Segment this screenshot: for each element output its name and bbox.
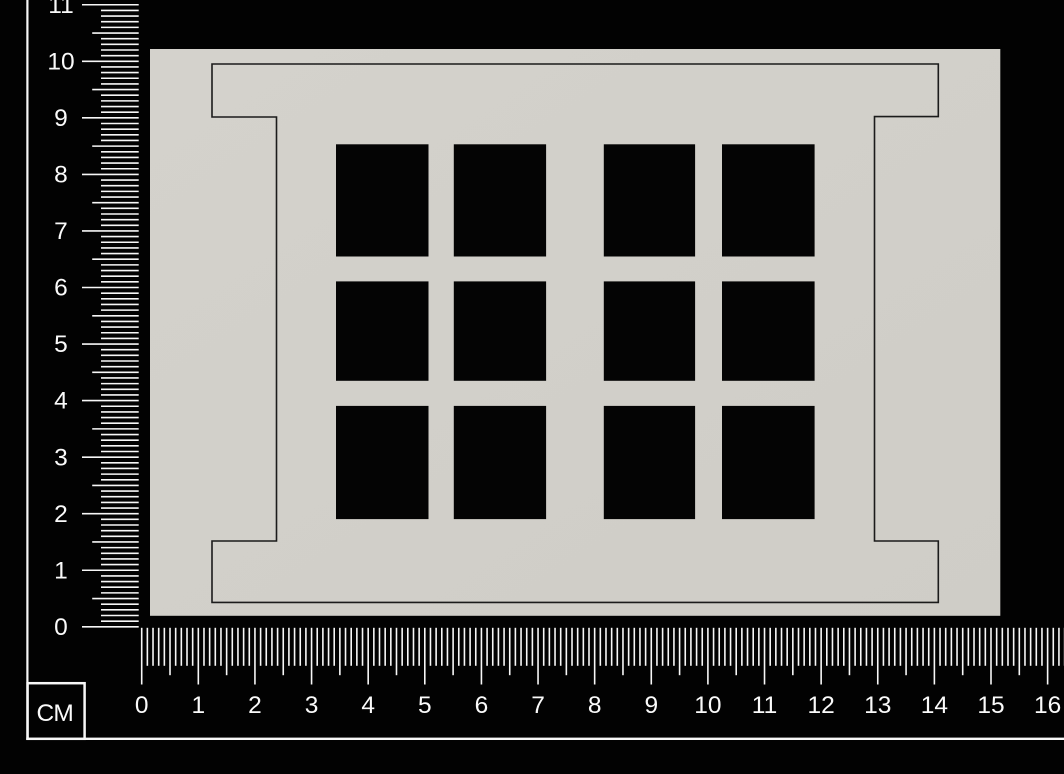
svg-text:2: 2 <box>54 501 68 528</box>
svg-text:5: 5 <box>418 692 432 719</box>
svg-text:14: 14 <box>921 692 948 719</box>
svg-text:5: 5 <box>54 331 68 358</box>
svg-text:0: 0 <box>135 692 149 719</box>
svg-text:13: 13 <box>864 692 891 719</box>
svg-text:4: 4 <box>54 388 68 415</box>
svg-text:6: 6 <box>475 692 489 719</box>
svg-text:12: 12 <box>808 692 835 719</box>
svg-text:7: 7 <box>54 218 68 245</box>
svg-text:15: 15 <box>977 692 1004 719</box>
svg-text:9: 9 <box>644 692 658 719</box>
svg-text:8: 8 <box>54 162 68 189</box>
svg-text:3: 3 <box>54 444 68 471</box>
svg-text:16: 16 <box>1034 692 1061 719</box>
svg-text:8: 8 <box>588 692 602 719</box>
svg-text:11: 11 <box>752 692 777 719</box>
svg-text:0: 0 <box>54 614 68 641</box>
svg-text:11: 11 <box>48 0 73 19</box>
svg-text:10: 10 <box>694 692 721 719</box>
svg-text:3: 3 <box>305 692 319 719</box>
svg-text:9: 9 <box>54 105 68 132</box>
svg-text:6: 6 <box>54 275 68 302</box>
svg-text:10: 10 <box>47 48 74 75</box>
svg-text:1: 1 <box>191 692 205 719</box>
svg-text:CM: CM <box>37 700 74 727</box>
svg-text:4: 4 <box>361 692 375 719</box>
svg-text:1: 1 <box>54 557 68 584</box>
svg-text:2: 2 <box>248 692 262 719</box>
svg-text:7: 7 <box>531 692 545 719</box>
